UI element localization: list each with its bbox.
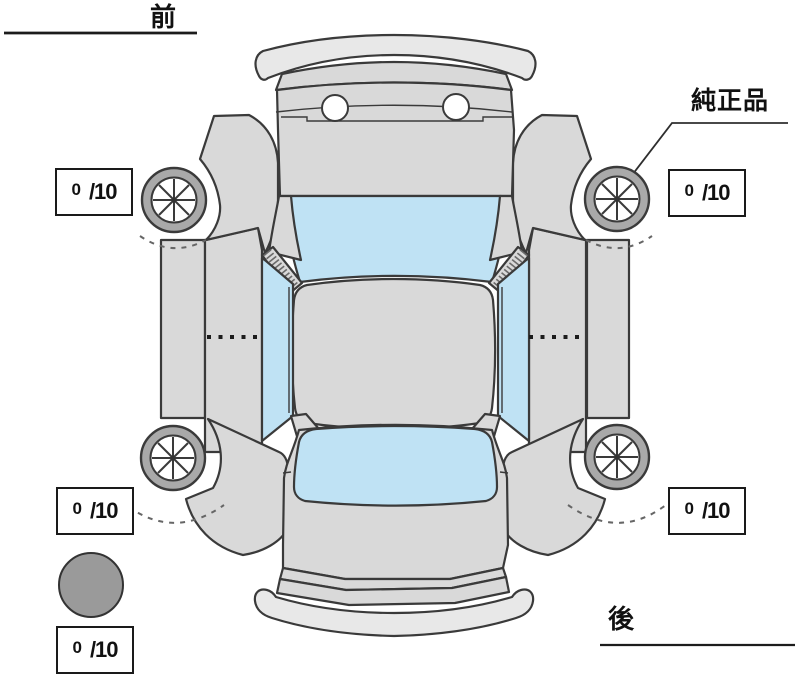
quarter-seam-tick-right — [500, 472, 508, 473]
fender-front-left — [200, 115, 278, 253]
rear-label: 後 — [608, 606, 634, 632]
wheel-rear-left — [141, 426, 205, 490]
tread-box-spare: 0 /10 — [56, 626, 134, 674]
quarter-seam-tick-left — [283, 472, 291, 473]
tread-fraction: /10 — [90, 498, 118, 524]
tread-numerator: 0 — [71, 180, 80, 200]
front-label: 前 — [150, 4, 176, 30]
tread-fraction: /10 — [702, 180, 730, 206]
hood-circle-left — [322, 95, 348, 121]
fender-rear-left — [186, 419, 288, 555]
fender-front-right — [513, 115, 591, 253]
side-sill-left — [205, 228, 262, 452]
tread-numerator: 0 — [72, 638, 81, 658]
door-panel-right — [587, 240, 629, 418]
hood — [277, 83, 514, 197]
tread-fraction: /10 — [89, 179, 117, 205]
wheel-front-left — [142, 168, 206, 232]
wheel-rear-right — [585, 425, 649, 489]
windshield — [285, 196, 507, 282]
tread-numerator: 0 — [684, 499, 693, 519]
tread-numerator: 0 — [684, 181, 693, 201]
rear-window — [294, 426, 497, 506]
side-sill-right — [529, 228, 586, 452]
roof — [292, 279, 495, 429]
tread-fraction: /10 — [702, 498, 730, 524]
tread-numerator: 0 — [72, 499, 81, 519]
tread-fraction: /10 — [90, 637, 118, 663]
wheel-front-right — [585, 167, 649, 231]
genuine-part-label: 純正品 — [691, 89, 769, 114]
tread-box-front-left: 0 /10 — [55, 168, 133, 216]
spare-tire-marker-circle — [58, 552, 124, 618]
tread-box-rear-right: 0 /10 — [668, 487, 746, 535]
tread-box-rear-left: 0 /10 — [56, 487, 134, 535]
tread-box-front-right: 0 /10 — [668, 169, 746, 217]
hood-circle-right — [443, 94, 469, 120]
door-panel-left — [161, 240, 205, 418]
vehicle-inspection-diagram: 前 後 純正品 0 /10 0 /10 0 /10 0 /10 0 /10 — [0, 0, 800, 675]
